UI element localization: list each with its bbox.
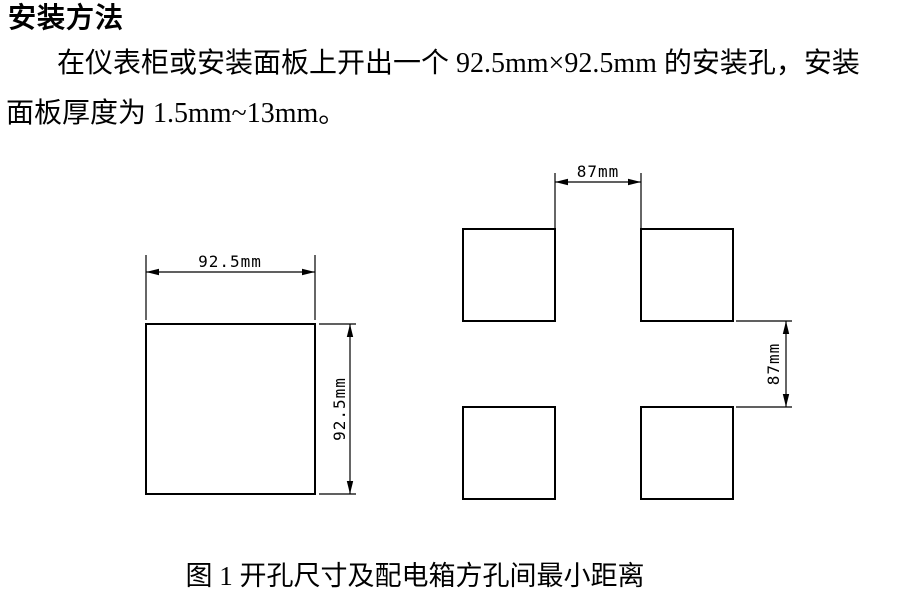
single-cutout-figure: 92.5mm 92.5mm — [146, 252, 356, 494]
arrowhead-right-icon — [628, 179, 641, 185]
arrowhead-right-icon — [302, 269, 315, 275]
figure-caption: 图 1 开孔尺寸及配电箱方孔间最小距离 — [0, 561, 830, 591]
cutout-width-label: 92.5mm — [198, 252, 262, 271]
arrowhead-left-icon — [555, 179, 568, 185]
grid-spacing-figure: 87mm 87mm — [463, 162, 792, 499]
cutout-height-label: 92.5mm — [330, 377, 349, 441]
arrowhead-down-icon — [783, 394, 789, 407]
hole-square-bottom-right — [641, 407, 733, 499]
horizontal-gap-label: 87mm — [577, 162, 620, 181]
installation-dimension-drawing: 92.5mm 92.5mm 87mm 87mm — [0, 0, 900, 604]
arrowhead-up-icon — [347, 324, 353, 337]
cutout-square — [146, 324, 315, 494]
hole-square-top-right — [641, 229, 733, 321]
hole-square-bottom-left — [463, 407, 555, 499]
hole-square-top-left — [463, 229, 555, 321]
arrowhead-up-icon — [783, 321, 789, 334]
arrowhead-down-icon — [347, 481, 353, 494]
vertical-gap-label: 87mm — [764, 343, 783, 386]
arrowhead-left-icon — [146, 269, 159, 275]
